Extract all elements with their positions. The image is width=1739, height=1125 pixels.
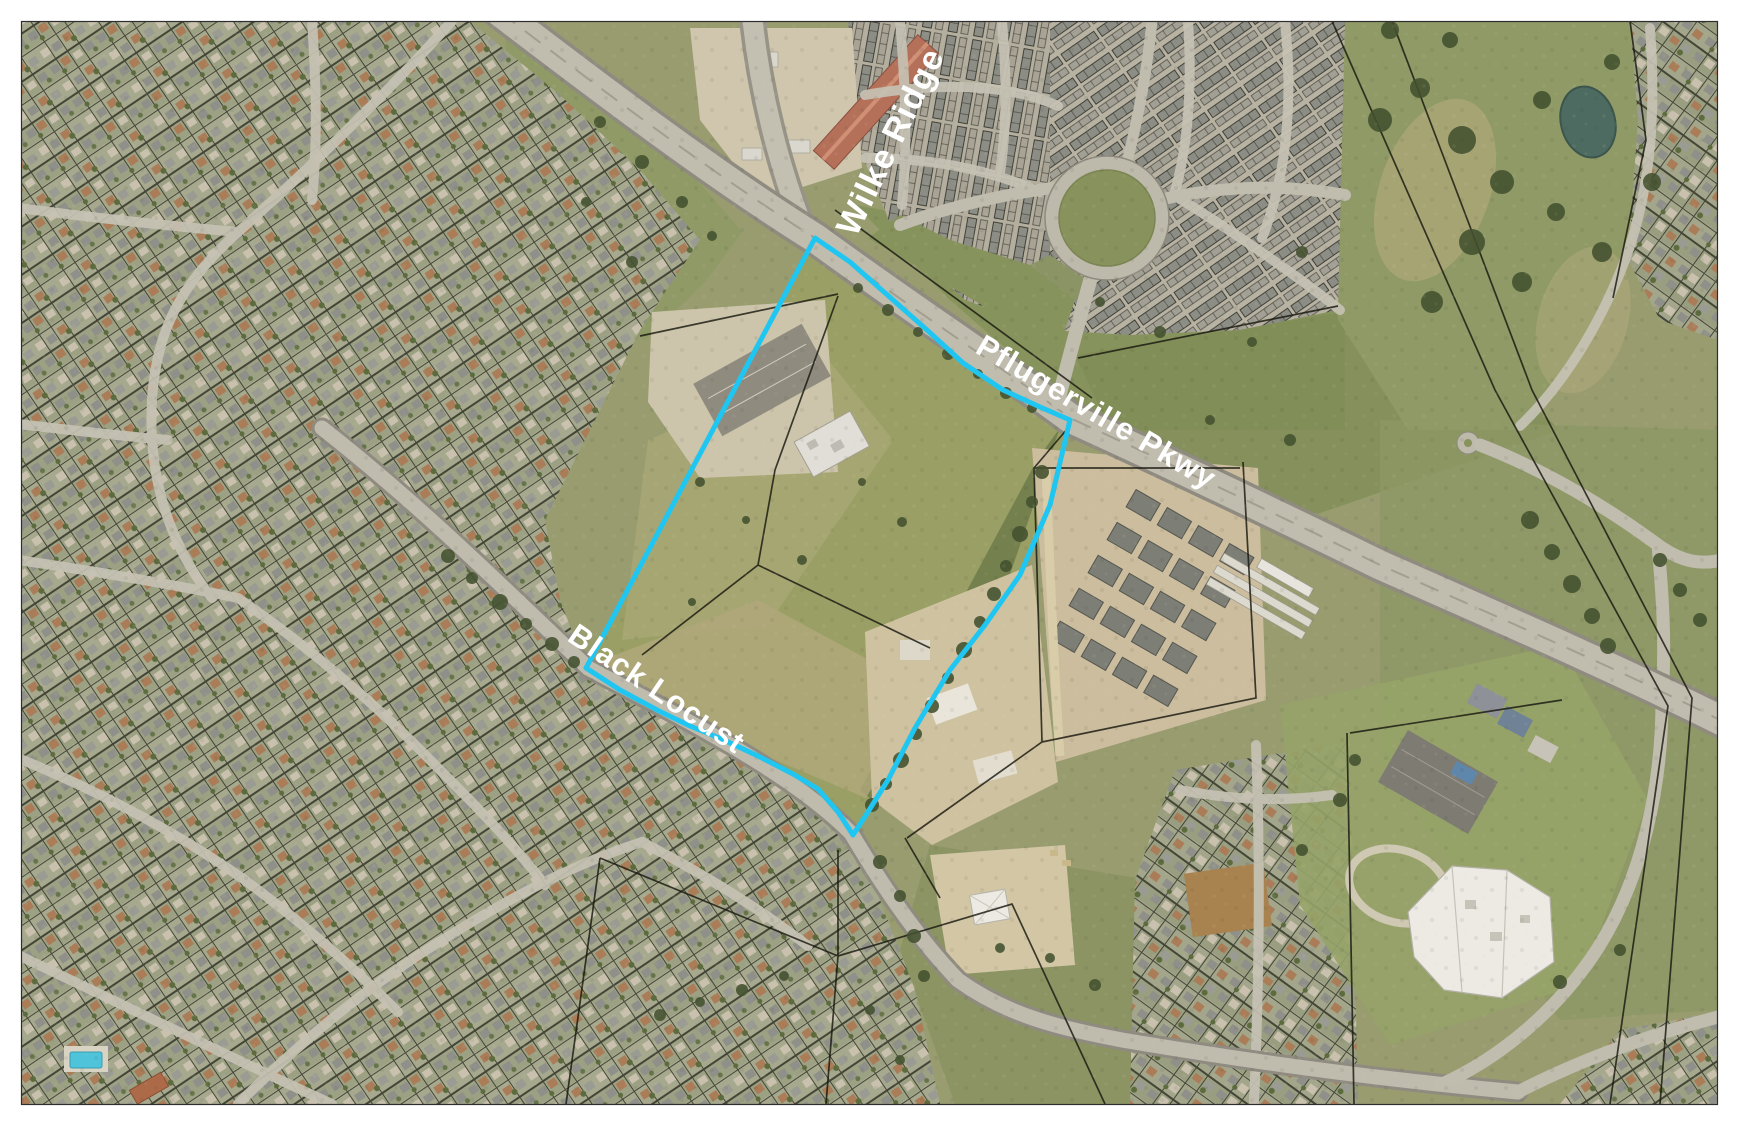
exhibit-page: Wilke Ridge Pflugerville Pkwy Black Locu…: [0, 0, 1739, 1125]
aerial-map: Wilke Ridge Pflugerville Pkwy Black Locu…: [0, 0, 1739, 1125]
aerial-imagery: Wilke Ridge Pflugerville Pkwy Black Locu…: [18, 12, 1739, 1105]
